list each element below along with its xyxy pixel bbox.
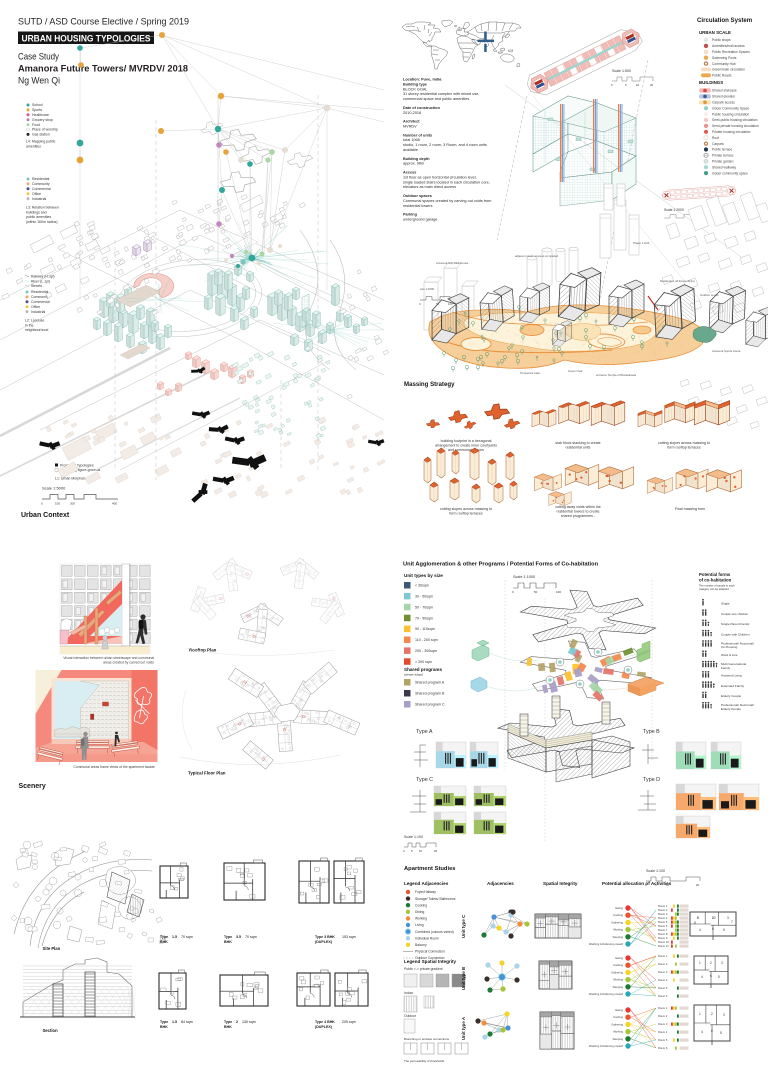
svg-text:Access: Access bbox=[403, 171, 416, 175]
svg-text:Amenities/mall access: Amenities/mall access bbox=[712, 44, 745, 48]
svg-text:Gas station: Gas station bbox=[32, 133, 50, 137]
svg-text:Type: Type bbox=[160, 935, 168, 939]
svg-text:Foyer/Hallway: Foyer/Hallway bbox=[415, 890, 436, 894]
svg-text:8: 8 bbox=[694, 921, 696, 925]
svg-text:Private housing circulation: Private housing circulation bbox=[712, 130, 751, 134]
svg-text:Cooking: Cooking bbox=[613, 963, 623, 967]
svg-text:20: 20 bbox=[434, 849, 438, 853]
svg-text:Room 1: Room 1 bbox=[658, 904, 668, 908]
svg-text:Final massing form: Final massing form bbox=[675, 507, 705, 511]
svg-text:Room 6: Room 6 bbox=[658, 1046, 668, 1050]
svg-text:Working: Working bbox=[613, 928, 623, 932]
svg-text:single loaded stairs located i: single loaded stairs located in each cir… bbox=[403, 180, 490, 184]
svg-text:Eating: Eating bbox=[615, 906, 623, 910]
svg-text:SUTD / ASD Course Elective / S: SUTD / ASD Course Elective / Spring 2019 bbox=[18, 16, 189, 27]
svg-text:Type C: Type C bbox=[416, 777, 433, 783]
svg-text:Room 9: Room 9 bbox=[658, 936, 668, 940]
svg-text:(within 160m radius): (within 160m radius) bbox=[26, 220, 58, 224]
svg-text:Unit type B: Unit type B bbox=[461, 967, 466, 990]
svg-text:100: 100 bbox=[556, 590, 561, 594]
svg-text:Rooftop Plan: Rooftop Plan bbox=[189, 648, 217, 653]
svg-text:Washing & Relieving oneself: Washing & Relieving oneself bbox=[589, 992, 623, 996]
svg-text:Washing & Relieving oneself: Washing & Relieving oneself bbox=[589, 1044, 623, 1048]
svg-text:Amanora Future Towers/ MVRDV/: Amanora Future Towers/ MVRDV/ 2018 bbox=[18, 63, 188, 74]
svg-text:1.5: 1.5 bbox=[172, 1020, 177, 1024]
svg-text:Balcony: Balcony bbox=[415, 943, 427, 947]
svg-text:Commercial: Commercial bbox=[32, 187, 51, 191]
svg-text:Room 2: Room 2 bbox=[658, 908, 668, 912]
svg-text:9: 9 bbox=[697, 916, 699, 920]
svg-text:Type: Type bbox=[224, 935, 232, 939]
svg-text:> 300 sqm: > 300 sqm bbox=[415, 660, 432, 664]
svg-text:Carpark: Carpark bbox=[712, 142, 724, 146]
svg-text:< 30sqm: < 30sqm bbox=[415, 584, 429, 588]
svg-text:Public housing circulation: Public housing circulation bbox=[712, 112, 749, 116]
svg-text:Room 1: Room 1 bbox=[658, 1006, 668, 1010]
svg-text:Washing & Relieving oneself: Washing & Relieving oneself bbox=[589, 942, 623, 946]
svg-text:public amenities: public amenities bbox=[26, 215, 51, 219]
svg-text:5: 5 bbox=[723, 928, 725, 932]
svg-text:Case Study: Case Study bbox=[18, 51, 59, 62]
svg-text:Amanora City Club House: Amanora City Club House bbox=[436, 261, 469, 265]
svg-text:Urban Context: Urban Context bbox=[21, 512, 70, 519]
svg-text:Branching or enclave connectio: Branching or enclave connections bbox=[404, 1037, 450, 1041]
svg-text:cutting away voids within the: cutting away voids within the bbox=[555, 505, 601, 509]
svg-text:6: 6 bbox=[711, 1029, 713, 1033]
svg-text:commercial space and public am: commercial space and public amenities bbox=[403, 97, 469, 101]
svg-text:Grocery shop: Grocery shop bbox=[32, 118, 53, 122]
svg-text:underground garage: underground garage bbox=[403, 218, 437, 222]
svg-text:Couple with Children: Couple with Children bbox=[721, 632, 750, 636]
svg-text:Type: Type bbox=[160, 1020, 168, 1024]
svg-text:5: 5 bbox=[718, 975, 720, 979]
svg-text:Residential: Residential bbox=[31, 290, 49, 294]
svg-text:1st floor as open horizontal c: 1st floor as open horizontal circulation… bbox=[403, 175, 477, 179]
svg-text:Green Oval: Green Oval bbox=[568, 369, 583, 373]
svg-text:URBAN HOUSING TYPOLOGIES: URBAN HOUSING TYPOLOGIES bbox=[22, 33, 151, 44]
svg-text:Circulation System: Circulation System bbox=[697, 17, 753, 24]
svg-text:Type D: Type D bbox=[643, 777, 660, 783]
svg-text:Scale 1:500: Scale 1:500 bbox=[612, 69, 631, 73]
svg-text:Sleeping: Sleeping bbox=[613, 935, 624, 939]
svg-text:Private terrace: Private terrace bbox=[712, 154, 734, 158]
svg-text:Adjacencies: Adjacencies bbox=[487, 881, 514, 886]
svg-text:total 1068: total 1068 bbox=[403, 138, 420, 142]
svg-text:Place of worship: Place of worship bbox=[32, 128, 58, 132]
svg-text:Room 6: Room 6 bbox=[658, 994, 668, 998]
svg-text:Communal areas frame views of: Communal areas frame views of the apartm… bbox=[73, 765, 155, 769]
svg-text:amenities: amenities bbox=[26, 144, 41, 148]
svg-text:Scenery: Scenery bbox=[19, 783, 46, 790]
svg-text:Room 2: Room 2 bbox=[658, 1014, 668, 1018]
svg-text:Eating: Eating bbox=[615, 1008, 623, 1012]
svg-text:School: School bbox=[32, 103, 43, 107]
svg-text:Shared program B: Shared program B bbox=[415, 692, 445, 696]
svg-text:Apartment Studies: Apartment Studies bbox=[404, 866, 456, 872]
svg-text:Type A: Type A bbox=[416, 729, 433, 735]
svg-text:Extended Family: Extended Family bbox=[721, 684, 744, 688]
svg-text:Physical Connection: Physical Connection bbox=[415, 950, 445, 954]
svg-text:cutting slopes across massing: cutting slopes across massing to bbox=[440, 507, 492, 511]
svg-text:2: 2 bbox=[236, 1020, 238, 1024]
svg-text:Food: Food bbox=[32, 123, 40, 127]
svg-text:areas created by carved out vo: areas created by carved out voids bbox=[103, 661, 154, 665]
svg-text:BHK: BHK bbox=[160, 1025, 168, 1029]
svg-text:200: 200 bbox=[70, 502, 75, 506]
svg-text:70 - 90sqm: 70 - 90sqm bbox=[415, 616, 433, 620]
svg-text:Public Recreation Spaces: Public Recreation Spaces bbox=[712, 50, 750, 54]
svg-text:Outdoor courts: Outdoor courts bbox=[700, 293, 719, 297]
svg-text:Restaurant, all fresco dining: Restaurant, all fresco dining bbox=[660, 279, 695, 283]
svg-text:100: 100 bbox=[448, 302, 453, 306]
svg-text:Section: Section bbox=[43, 1028, 59, 1033]
svg-text:Building depth: Building depth bbox=[403, 157, 430, 161]
svg-text:residential towers to create: residential towers to create bbox=[557, 510, 600, 514]
svg-text:130 sqm: 130 sqm bbox=[242, 1020, 256, 1024]
svg-text:Typical Floor Plan: Typical Floor Plan bbox=[188, 771, 226, 776]
svg-text:in the: in the bbox=[25, 323, 34, 327]
svg-text:3: 3 bbox=[723, 1013, 725, 1017]
svg-text:Residential: Residential bbox=[32, 177, 50, 181]
svg-text:Public terrace: Public terrace bbox=[712, 148, 732, 152]
svg-text:Elderly Couple: Elderly Couple bbox=[721, 694, 741, 698]
svg-text:form rooftop terraces: form rooftop terraces bbox=[667, 446, 701, 450]
svg-text:1.5: 1.5 bbox=[172, 935, 177, 939]
svg-text:Room 4: Room 4 bbox=[658, 978, 668, 982]
svg-text:Parking: Parking bbox=[403, 213, 418, 217]
svg-text:Room 1: Room 1 bbox=[658, 954, 668, 958]
svg-text:The permeability of thresholds: The permeability of thresholds bbox=[404, 1059, 445, 1063]
svg-text:Legend Spatial Integrity: Legend Spatial Integrity bbox=[404, 959, 457, 964]
svg-text:Room 3: Room 3 bbox=[658, 1022, 668, 1026]
svg-text:5: 5 bbox=[720, 1031, 722, 1035]
svg-text:Shared elevator: Shared elevator bbox=[712, 95, 736, 99]
svg-text:Amanora Sports Arena: Amanora Sports Arena bbox=[712, 349, 741, 353]
svg-text:2010-2018: 2010-2018 bbox=[403, 111, 421, 115]
svg-text:(DUPLEX): (DUPLEX) bbox=[315, 1025, 333, 1029]
svg-text:of co-habitation: of co-habitation bbox=[699, 578, 732, 583]
svg-text:Scale 1:100: Scale 1:100 bbox=[404, 835, 423, 839]
svg-text:Phase 1 built: Phase 1 built bbox=[633, 241, 649, 245]
svg-text:Industrial: Industrial bbox=[32, 197, 46, 201]
svg-text:building footprint in a hexago: building footprint in a hexagonal bbox=[441, 439, 492, 443]
svg-text:50: 50 bbox=[534, 590, 538, 594]
svg-text:Community Hub: Community Hub bbox=[712, 62, 736, 66]
svg-text:Eating: Eating bbox=[615, 956, 623, 960]
svg-text:Cooking: Cooking bbox=[613, 1015, 623, 1019]
svg-text:Number of units: Number of units bbox=[403, 133, 432, 137]
svg-text:Room 10: Room 10 bbox=[658, 940, 669, 944]
svg-text:category can be adapted: category can be adapted bbox=[699, 587, 729, 591]
svg-text:Co-Housing: Co-Housing bbox=[721, 645, 738, 649]
svg-text:Temperant Lake: Temperant Lake bbox=[520, 371, 541, 375]
svg-text:Working: Working bbox=[613, 1030, 623, 1034]
svg-text:Single Parent Family: Single Parent Family bbox=[721, 622, 750, 626]
svg-text:Shared walkway: Shared walkway bbox=[712, 165, 736, 169]
svg-text:BLOCK GOAL: BLOCK GOAL bbox=[403, 87, 427, 91]
svg-text:Industrial: Industrial bbox=[31, 310, 45, 314]
svg-text:Gathering: Gathering bbox=[611, 1022, 623, 1026]
svg-text:Sports: Sports bbox=[32, 108, 42, 112]
svg-text:Sleeping: Sleeping bbox=[613, 985, 624, 989]
svg-text:20: 20 bbox=[696, 883, 700, 887]
svg-text:Commercial: Commercial bbox=[31, 300, 50, 304]
svg-text:2: 2 bbox=[710, 961, 712, 965]
svg-text:Private garden: Private garden bbox=[712, 160, 734, 164]
svg-text:BHK: BHK bbox=[160, 940, 168, 944]
svg-text:Scale 1:1000: Scale 1:1000 bbox=[513, 575, 535, 579]
svg-text:Room 5: Room 5 bbox=[658, 986, 668, 990]
svg-text:BHK: BHK bbox=[224, 1025, 232, 1029]
svg-text:Living: Living bbox=[415, 923, 424, 927]
svg-text:residential towers: residential towers bbox=[403, 204, 433, 208]
svg-text:Communal spaces created by car: Communal spaces created by carving out v… bbox=[403, 199, 491, 203]
svg-text:2: 2 bbox=[711, 1012, 713, 1016]
svg-text:(DUPLEX): (DUPLEX) bbox=[315, 940, 333, 944]
svg-text:Building type: Building type bbox=[403, 82, 427, 86]
svg-text:3: 3 bbox=[727, 916, 729, 920]
svg-text:Room 8: Room 8 bbox=[658, 932, 668, 936]
svg-text:10: 10 bbox=[636, 83, 640, 87]
svg-text:Storage/ Toilets/ Bathrooms: Storage/ Toilets/ Bathrooms bbox=[415, 897, 456, 901]
svg-text:available: available bbox=[403, 148, 418, 152]
svg-text:form rooftop terraces: form rooftop terraces bbox=[449, 512, 483, 516]
svg-text:Scale 1:100: Scale 1:100 bbox=[646, 869, 665, 873]
svg-text:Elderly People: Elderly People bbox=[721, 707, 741, 711]
svg-text:Unit types by size: Unit types by size bbox=[404, 573, 443, 578]
svg-text:slab block stacking to create: slab block stacking to create bbox=[555, 441, 600, 445]
svg-text:Public shops: Public shops bbox=[712, 38, 731, 42]
svg-text:Location: Pune, India: Location: Pune, India bbox=[403, 78, 442, 82]
svg-text:7: 7 bbox=[731, 920, 733, 924]
svg-text:153 sqm: 153 sqm bbox=[342, 935, 356, 939]
svg-text:Gathering: Gathering bbox=[611, 920, 623, 924]
svg-text:Healthcare: Healthcare bbox=[32, 113, 49, 117]
svg-text:Scale 1:2000: Scale 1:2000 bbox=[664, 208, 684, 212]
svg-text:cutting slopes across massing: cutting slopes across massing to bbox=[658, 441, 710, 445]
svg-text:Indoor community space: Indoor community space bbox=[712, 171, 748, 175]
svg-text:Carpark access: Carpark access bbox=[712, 101, 735, 105]
svg-text:Assisted Living: Assisted Living bbox=[721, 674, 742, 678]
svg-text:4: 4 bbox=[699, 928, 701, 932]
svg-text:Room 5: Room 5 bbox=[658, 1038, 668, 1042]
svg-text:Potential forms: Potential forms bbox=[699, 572, 731, 577]
svg-text:Single: Single bbox=[721, 602, 730, 606]
svg-text:205 sqm: 205 sqm bbox=[342, 1020, 356, 1024]
svg-text:70 sqm: 70 sqm bbox=[181, 935, 193, 939]
svg-text:Public Roads: Public Roads bbox=[712, 74, 732, 78]
svg-text:4: 4 bbox=[701, 1030, 703, 1034]
svg-text:Massing Strategy: Massing Strategy bbox=[404, 381, 455, 388]
svg-text:Type B: Type B bbox=[643, 729, 660, 735]
svg-text:Shared program C: Shared program C bbox=[415, 703, 445, 707]
svg-text:Combined (colours varied): Combined (colours varied) bbox=[415, 930, 454, 934]
svg-text:70 sqm: 70 sqm bbox=[245, 935, 257, 939]
svg-text:4: 4 bbox=[701, 975, 703, 979]
svg-text:arrangement to create inner co: arrangement to create inner courtyards bbox=[435, 444, 497, 448]
svg-text:Community: Community bbox=[31, 295, 49, 299]
svg-text:Working: Working bbox=[415, 917, 427, 921]
svg-text:Ave 1:1500: Ave 1:1500 bbox=[420, 287, 435, 291]
svg-text:10: 10 bbox=[419, 849, 423, 853]
svg-text:The number of people in each: The number of people in each bbox=[699, 584, 735, 588]
svg-text:Gathering: Gathering bbox=[611, 970, 623, 974]
svg-text:Semi-public housing circulatio: Semi-public housing circulation bbox=[712, 118, 758, 122]
svg-text:entrance Temple of Brahadeswa: entrance Temple of Brahadeswa bbox=[596, 373, 637, 377]
svg-text:Indoor Community Space: Indoor Community Space bbox=[712, 106, 749, 110]
svg-text:shared programmes -: shared programmes - bbox=[561, 514, 596, 518]
svg-text:Room 4: Room 4 bbox=[658, 1030, 668, 1034]
svg-text:Family: Family bbox=[721, 666, 731, 670]
svg-text:1: 1 bbox=[699, 1012, 701, 1016]
svg-text:(please adapt): (please adapt) bbox=[404, 673, 423, 677]
svg-text:Architect: Architect bbox=[403, 120, 420, 124]
svg-text:10: 10 bbox=[712, 916, 716, 920]
svg-text:Visual interaction between urb: Visual interaction between urban streets… bbox=[63, 656, 154, 660]
svg-text:residential units: residential units bbox=[566, 446, 591, 450]
svg-text:Cooking: Cooking bbox=[415, 903, 427, 907]
svg-text:50: 50 bbox=[436, 302, 440, 306]
svg-text:90 - 110sqm: 90 - 110sqm bbox=[415, 627, 435, 631]
svg-text:Streets: Streets bbox=[31, 284, 42, 288]
svg-text:buildings and: buildings and bbox=[26, 210, 47, 214]
svg-text:Dining: Dining bbox=[415, 910, 425, 914]
svg-text:Community: Community bbox=[32, 182, 50, 186]
svg-text:Working: Working bbox=[613, 978, 623, 982]
svg-text:84 sqm: 84 sqm bbox=[181, 1020, 193, 1024]
svg-text:Green/main circulation: Green/main circulation bbox=[712, 68, 745, 72]
svg-text:neighbourhood: neighbourhood bbox=[25, 328, 48, 332]
svg-text:31 storey residential complex: 31 storey residential complex with mixed… bbox=[403, 92, 479, 96]
svg-text:studio, 1 room, 2 room, 3 Room: studio, 1 room, 2 room, 3 Room, and 4 ro… bbox=[403, 143, 487, 147]
svg-text:200 - 300sqm: 200 - 300sqm bbox=[415, 649, 437, 653]
svg-text:Individual Room: Individual Room bbox=[415, 936, 439, 940]
svg-text:50 - 70sqm: 50 - 70sqm bbox=[415, 605, 433, 609]
svg-text:Room 2: Room 2 bbox=[658, 962, 668, 966]
svg-text:Swimming Pools: Swimming Pools bbox=[712, 56, 737, 60]
svg-text:Unit type C: Unit type C bbox=[461, 914, 466, 938]
svg-text:Shared program A: Shared program A bbox=[415, 681, 445, 685]
svg-text:Room 6: Room 6 bbox=[658, 924, 668, 928]
svg-text:Indoor: Indoor bbox=[404, 991, 414, 995]
svg-text:Sleeping: Sleeping bbox=[613, 1037, 624, 1041]
svg-text:URBAN SCALE: URBAN SCALE bbox=[699, 30, 731, 35]
svg-text:Office: Office bbox=[31, 305, 40, 309]
svg-text:Roof: Roof bbox=[712, 136, 719, 140]
svg-text:approx. 98m: approx. 98m bbox=[403, 162, 424, 166]
svg-text:30 - 50sqm: 30 - 50sqm bbox=[415, 595, 433, 599]
svg-text:Room 3: Room 3 bbox=[658, 912, 668, 916]
svg-text:Spatial Integrity: Spatial Integrity bbox=[543, 881, 578, 886]
svg-text:Semi-private housing circulati: Semi-private housing circulation bbox=[712, 124, 759, 128]
svg-text:100: 100 bbox=[55, 502, 60, 506]
svg-text:1: 1 bbox=[699, 961, 701, 965]
svg-text:Work & Live: Work & Live bbox=[721, 653, 738, 657]
svg-text:10: 10 bbox=[666, 883, 670, 887]
svg-text:Room 11: Room 11 bbox=[658, 944, 669, 948]
svg-text:Scale 1:5000: Scale 1:5000 bbox=[42, 486, 66, 491]
svg-text:L1: Urban Morphology: L1: Urban Morphology bbox=[55, 477, 90, 481]
svg-text:110 - 200 sqm: 110 - 200 sqm bbox=[415, 638, 438, 642]
svg-text:L3: Relation between: L3: Relation between bbox=[26, 206, 59, 210]
svg-text:BUILDINGS: BUILDINGS bbox=[699, 80, 723, 85]
svg-text:3: 3 bbox=[721, 961, 723, 965]
svg-text:Shared programs: Shared programs bbox=[404, 667, 442, 672]
svg-text:Room 7: Room 7 bbox=[658, 928, 668, 932]
svg-text:20: 20 bbox=[650, 83, 654, 87]
svg-text:Unit Agglomeration & other Pro: Unit Agglomeration & other Programs / Po… bbox=[403, 562, 599, 568]
svg-text:3.5: 3.5 bbox=[236, 935, 241, 939]
svg-text:6: 6 bbox=[710, 974, 712, 978]
svg-text:MVRDV: MVRDV bbox=[403, 125, 417, 129]
svg-text:Site Plan: Site Plan bbox=[43, 946, 61, 951]
svg-text:BHK: BHK bbox=[224, 940, 232, 944]
svg-text:Public <-> private gradient: Public <-> private gradient bbox=[404, 967, 443, 971]
svg-text:Unit type A: Unit type A bbox=[461, 1016, 466, 1040]
svg-text:adjacent tower, process comple: adjacent tower, process completed bbox=[515, 254, 559, 258]
svg-text:Outdoor spaces: Outdoor spaces bbox=[403, 194, 432, 198]
svg-text:Type 4 BHK: Type 4 BHK bbox=[315, 1020, 335, 1024]
svg-text:Potential allocation of Activi: Potential allocation of Activities bbox=[602, 881, 672, 886]
svg-text:elevators as main direct acces: elevators as main direct access bbox=[403, 185, 456, 189]
svg-text:Room 4: Room 4 bbox=[658, 916, 668, 920]
svg-text:Legend Adjacencies: Legend Adjacencies bbox=[404, 881, 449, 886]
svg-text:Cooking: Cooking bbox=[613, 913, 623, 917]
svg-text:Ng Wen Qi: Ng Wen Qi bbox=[18, 75, 60, 86]
svg-text:6: 6 bbox=[712, 927, 714, 931]
svg-text:Type: Type bbox=[224, 1020, 232, 1024]
svg-text:400: 400 bbox=[112, 502, 117, 506]
svg-text:Office: Office bbox=[32, 192, 41, 196]
svg-text:Room 5: Room 5 bbox=[658, 920, 668, 924]
svg-text:Room 3: Room 3 bbox=[658, 970, 668, 974]
svg-text:Type 3 BHK: Type 3 BHK bbox=[315, 935, 335, 939]
svg-text:Couple w/o children: Couple w/o children bbox=[721, 612, 748, 616]
svg-text:L4: Mapping public: L4: Mapping public bbox=[26, 140, 56, 144]
svg-text:Shared staircase: Shared staircase bbox=[712, 89, 737, 93]
svg-text:Date of construction: Date of construction bbox=[403, 106, 441, 110]
svg-text:Outdoor: Outdoor bbox=[404, 1014, 417, 1018]
